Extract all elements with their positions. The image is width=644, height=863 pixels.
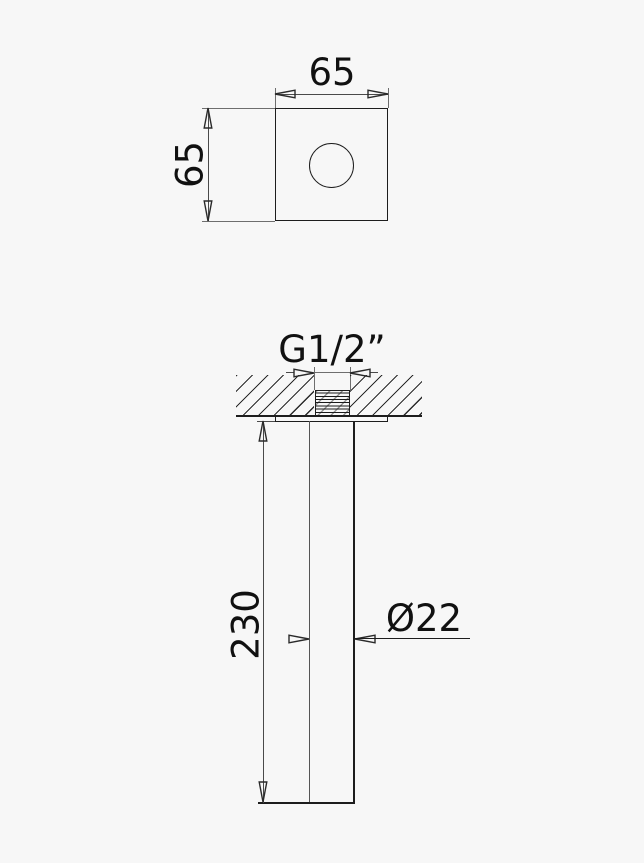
thread-dimension-line	[314, 372, 350, 373]
height-arrowhead-bottom-icon	[202, 200, 214, 222]
tube-bottom-edge	[258, 802, 355, 804]
escutcheon-flange	[275, 416, 388, 423]
width-dimension-label: 65	[301, 54, 363, 91]
length-arrowhead-top-icon	[257, 420, 269, 442]
threaded-connector	[315, 390, 350, 416]
arm-hole-circle	[309, 143, 354, 188]
width-arrowhead-right-icon	[367, 88, 389, 100]
height-dimension-label: 65	[172, 134, 209, 196]
height-arrowhead-top-icon	[202, 107, 214, 129]
tube-wall-right	[353, 421, 355, 803]
diameter-arrowhead-left-icon	[288, 633, 310, 645]
ceiling-hatch-left	[236, 375, 314, 416]
thread-dimension-label: G1/2”	[277, 331, 387, 368]
length-dimension-label: 230	[228, 585, 265, 665]
diameter-dimension-label: Ø22	[381, 600, 467, 637]
technical-drawing-canvas: 65 65 G1/2”	[0, 0, 644, 863]
length-arrowhead-bottom-icon	[257, 781, 269, 803]
width-arrowhead-left-icon	[274, 88, 296, 100]
thread-dim-tail-right	[370, 372, 378, 373]
ceiling-hatch-right	[350, 375, 422, 416]
tube-wall-left	[309, 421, 310, 803]
